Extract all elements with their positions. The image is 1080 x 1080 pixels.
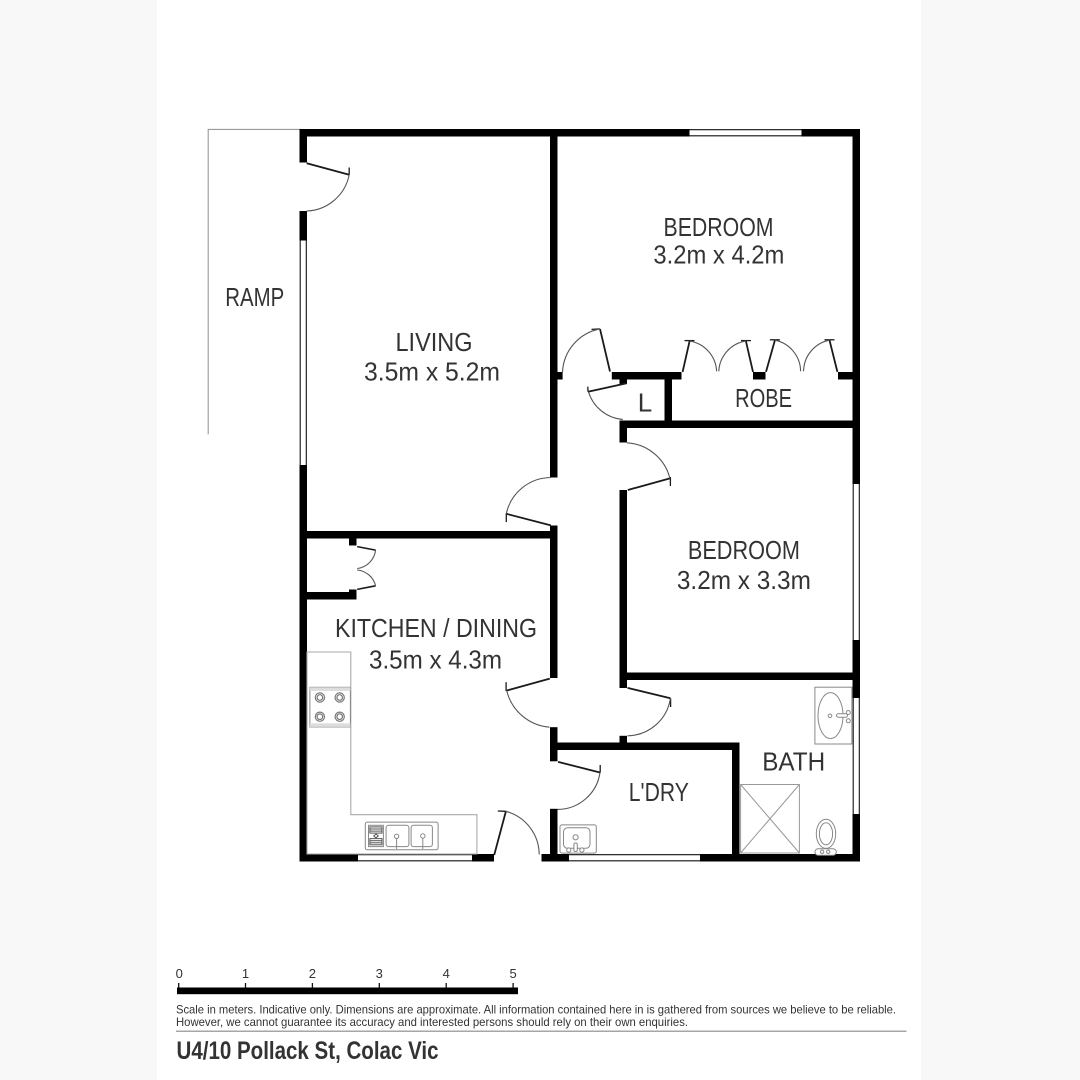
svg-text:LIVING: LIVING — [396, 327, 473, 357]
svg-text:3.2m x 3.3m: 3.2m x 3.3m — [677, 565, 811, 595]
svg-text:0: 0 — [176, 966, 183, 981]
svg-text:U4/10 Pollack St, Colac Vic: U4/10 Pollack St, Colac Vic — [177, 1037, 439, 1065]
svg-text:KITCHEN / DINING: KITCHEN / DINING — [335, 613, 537, 643]
svg-text:4: 4 — [443, 966, 450, 981]
svg-text:1: 1 — [242, 966, 249, 981]
svg-text:BEDROOM: BEDROOM — [688, 535, 800, 565]
svg-text:3.2m x 4.2m: 3.2m x 4.2m — [653, 240, 784, 270]
svg-text:ROBE: ROBE — [735, 383, 792, 413]
svg-text:BEDROOM: BEDROOM — [664, 212, 774, 242]
svg-text:3: 3 — [376, 966, 383, 981]
svg-text:5: 5 — [509, 966, 516, 981]
svg-text:RAMP: RAMP — [225, 282, 284, 312]
svg-text:3.5m x 4.3m: 3.5m x 4.3m — [369, 645, 502, 675]
svg-text:L: L — [638, 388, 652, 418]
svg-text:However, we cannot guarantee i: However, we cannot guarantee its accurac… — [176, 1015, 688, 1029]
svg-text:BATH: BATH — [762, 747, 825, 777]
svg-text:L'DRY: L'DRY — [629, 777, 689, 807]
svg-text:2: 2 — [309, 966, 316, 981]
svg-text:3.5m x 5.2m: 3.5m x 5.2m — [364, 357, 500, 387]
